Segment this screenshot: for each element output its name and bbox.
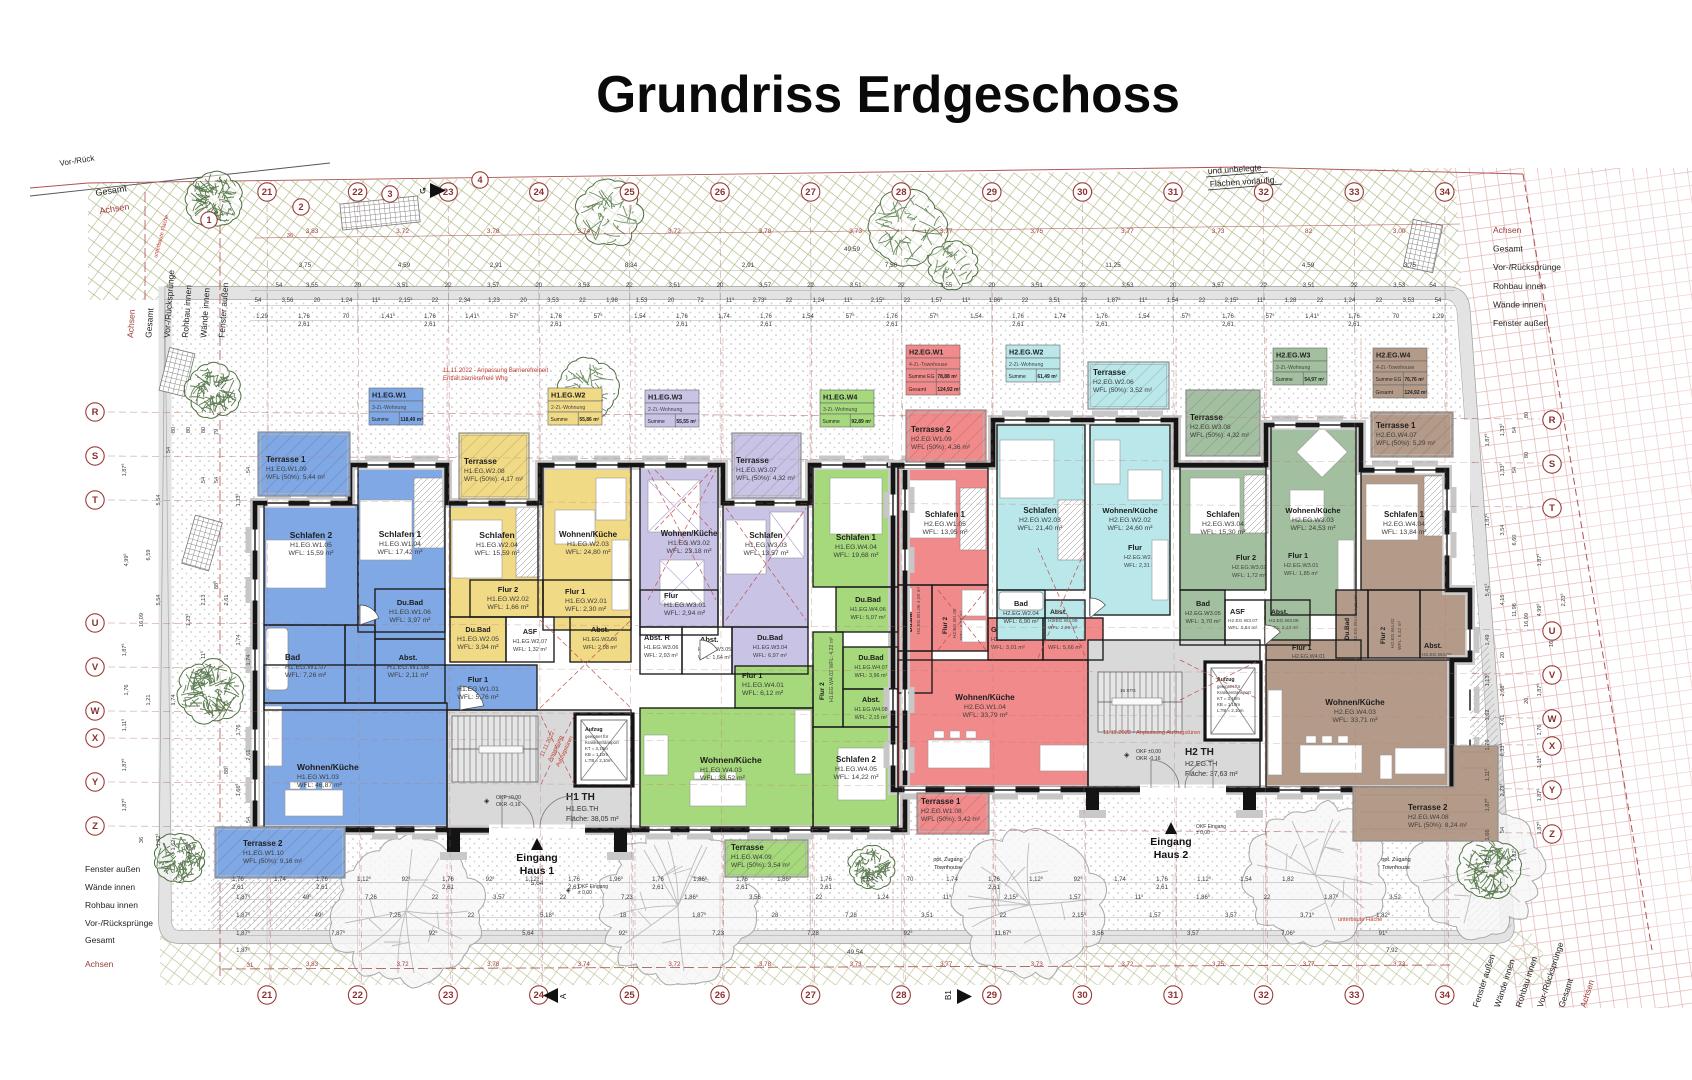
svg-text:± 0,00: ± 0,00: [578, 890, 592, 896]
svg-text:H1.EG.W4.07: H1.EG.W4.07: [854, 665, 887, 671]
svg-text:79: 79: [214, 429, 220, 435]
svg-text:2,61: 2,61: [736, 885, 748, 891]
svg-text:Summe: Summe: [551, 417, 568, 423]
svg-text:H1.EG.W1.07: H1.EG.W1.07: [285, 664, 327, 671]
svg-text:Flur: Flur: [1128, 543, 1142, 552]
svg-text:Krankentransport: Krankentransport: [1217, 690, 1251, 695]
svg-text:32: 32: [1258, 187, 1269, 198]
svg-text:1,54: 1,54: [1138, 314, 1150, 320]
svg-text:22: 22: [1376, 298, 1383, 304]
svg-text:H1.EG.W2.05: H1.EG.W2.05: [457, 636, 499, 643]
svg-text:1,865: 1,865: [1196, 894, 1210, 901]
svg-text:54: 54: [246, 817, 252, 823]
svg-text:1,74: 1,74: [946, 877, 958, 883]
svg-text:70: 70: [1393, 314, 1400, 320]
svg-text:WFL (50%): 4,17 m²: WFL (50%): 4,17 m²: [464, 476, 524, 483]
svg-text:Schlafen 1: Schlafen 1: [379, 529, 422, 539]
svg-text:22: 22: [1079, 282, 1086, 289]
svg-text:Abst.: Abst.: [399, 653, 418, 662]
svg-text:55,55 m²: 55,55 m²: [676, 419, 696, 425]
svg-text:Terrasse 1: Terrasse 1: [266, 455, 306, 464]
svg-text:55,86 m²: 55,86 m²: [579, 417, 599, 423]
svg-text:H2.EG.W3.08: H2.EG.W3.08: [1190, 424, 1231, 431]
svg-text:Z: Z: [92, 821, 98, 832]
svg-text:H1.EG.W2: H1.EG.W2: [551, 391, 585, 400]
svg-text:WFL (50%): 4,36 m²: WFL (50%): 4,36 m²: [911, 444, 971, 451]
svg-text:54: 54: [246, 467, 252, 473]
svg-text:X: X: [1549, 741, 1556, 752]
svg-text:22: 22: [904, 298, 911, 304]
svg-text:ASF: ASF: [523, 627, 538, 636]
svg-text:80: 80: [171, 427, 177, 433]
svg-text:WFL (50%): 3,54 m²: WFL (50%): 3,54 m²: [731, 862, 791, 869]
svg-text:2,13: 2,13: [201, 595, 207, 606]
svg-text:1,54: 1,54: [1167, 298, 1179, 304]
svg-text:WFL: 1,66 m²: WFL: 1,66 m²: [487, 604, 529, 611]
svg-text:Gesamt: Gesamt: [909, 387, 927, 393]
svg-text:B1: B1: [944, 990, 953, 1000]
svg-text:ASF: ASF: [1230, 607, 1245, 616]
svg-text:2,61: 2,61: [886, 322, 898, 328]
svg-text:H2.EG.W2: H2.EG.W2: [1009, 348, 1043, 357]
svg-text:4,61: 4,61: [1500, 715, 1506, 726]
svg-text:20: 20: [1500, 652, 1506, 658]
svg-text:Summe: Summe: [1009, 374, 1026, 380]
svg-text:23: 23: [443, 187, 454, 198]
svg-text:28: 28: [896, 990, 907, 1001]
svg-text:78,88 m²: 78,88 m²: [937, 374, 957, 380]
svg-text:1,53: 1,53: [636, 298, 648, 304]
svg-text:H1.EG.W3: H1.EG.W3: [648, 393, 682, 402]
svg-text:1,76: 1,76: [736, 877, 748, 883]
svg-text:↺: ↺: [419, 186, 427, 196]
svg-text:3,78: 3,78: [759, 961, 772, 968]
svg-text:Wohnen/Küche: Wohnen/Küche: [1285, 506, 1340, 515]
svg-text:22: 22: [1264, 895, 1271, 901]
svg-text:22: 22: [898, 282, 905, 289]
svg-text:H1.EG.W4.06: H1.EG.W4.06: [850, 607, 886, 613]
svg-text:33: 33: [1349, 187, 1360, 198]
svg-text:Flur 2: Flur 2: [942, 616, 949, 634]
svg-text:3,72: 3,72: [396, 228, 409, 235]
svg-text:1,21: 1,21: [146, 695, 152, 706]
svg-text:6,59: 6,59: [146, 550, 152, 561]
svg-text:1,76: 1,76: [652, 877, 664, 883]
svg-text:Terrasse: Terrasse: [1190, 413, 1223, 422]
svg-text:L:TB = 2,10m: L:TB = 2,10m: [585, 758, 612, 763]
svg-text:H1.EG.W1.01: H1.EG.W1.01: [457, 686, 499, 693]
svg-text:Townhouse: Townhouse: [1382, 865, 1410, 871]
svg-text:1,74: 1,74: [1114, 877, 1126, 883]
svg-text:1,875: 1,875: [236, 930, 250, 937]
svg-text:49,59: 49,59: [844, 246, 860, 253]
svg-text:2,61: 2,61: [442, 885, 454, 891]
svg-text:20: 20: [717, 282, 724, 289]
svg-text:H1.EG.W3.03: H1.EG.W3.03: [745, 542, 787, 549]
svg-text:7,28: 7,28: [845, 913, 857, 919]
svg-text:22: 22: [816, 895, 823, 901]
svg-text:H1.EG.W2.04: H1.EG.W2.04: [476, 542, 518, 549]
svg-text:Vor-/Rücksprünge: Vor-/Rücksprünge: [1493, 262, 1561, 272]
svg-text:1,24: 1,24: [877, 895, 889, 901]
svg-text:3,51: 3,51: [1303, 282, 1316, 289]
svg-text:WFL: 6,90 m²: WFL: 6,90 m²: [1003, 619, 1038, 625]
svg-text:1,57: 1,57: [1069, 895, 1081, 901]
svg-text:1,29: 1,29: [1432, 314, 1444, 320]
svg-text:1,76: 1,76: [820, 877, 832, 883]
svg-text:Abst.: Abst.: [1424, 641, 1442, 650]
svg-text:2,61: 2,61: [550, 322, 562, 328]
svg-text:1,74: 1,74: [274, 877, 286, 883]
svg-text:KT = 3,10m: KT = 3,10m: [1217, 696, 1240, 701]
svg-text:7,26: 7,26: [389, 913, 401, 919]
svg-text:H2.EG.W1.04: H2.EG.W1.04: [964, 704, 1006, 711]
svg-text:11.11.2022 - Anpassung Barrier: 11.11.2022 - Anpassung Barrierefreiheit: [443, 368, 549, 374]
svg-text:3,57: 3,57: [1212, 282, 1225, 289]
svg-text:V: V: [92, 662, 99, 673]
svg-text:1,76: 1,76: [316, 877, 328, 883]
svg-text:WFL: 5,66 m²: WFL: 5,66 m²: [1048, 645, 1082, 651]
svg-text:Rohbau innen: Rohbau innen: [85, 900, 138, 910]
svg-text:2,61: 2,61: [1156, 885, 1168, 891]
svg-text:54: 54: [214, 477, 220, 483]
svg-text:2,61: 2,61: [568, 885, 580, 891]
svg-text:Flur 1: Flur 1: [742, 671, 762, 680]
svg-text:H2.EG.W2.04: H2.EG.W2.04: [1003, 611, 1040, 617]
svg-text:22: 22: [786, 298, 793, 304]
svg-text:1,125: 1,125: [1029, 876, 1043, 883]
svg-text:8,34: 8,34: [625, 262, 638, 269]
svg-text:Z: Z: [1549, 829, 1555, 840]
svg-text:H2.EG.W4.02: H2.EG.W4.02: [1390, 618, 1396, 648]
svg-text:H1.EG.W4.09: H1.EG.W4.09: [731, 854, 772, 861]
svg-text:Fenster außen: Fenster außen: [1493, 318, 1549, 328]
svg-text:5,185: 5,185: [540, 912, 554, 919]
svg-text:L:TB = 2,10m: L:TB = 2,10m: [1217, 708, 1244, 713]
svg-text:16,09: 16,09: [1524, 613, 1530, 627]
svg-text:2,61: 2,61: [316, 885, 328, 891]
svg-text:23: 23: [443, 990, 454, 1001]
svg-text:54: 54: [1500, 827, 1506, 833]
svg-text:Flur 1: Flur 1: [468, 675, 488, 684]
svg-text:1,76: 1,76: [1096, 314, 1108, 320]
svg-text:H1.EG.W4: H1.EG.W4: [823, 393, 857, 402]
svg-text:1,24: 1,24: [1344, 298, 1356, 304]
svg-text:11.11.2022 - Anpassung Aufzugs: 11.11.2022 - Anpassung Aufzugstüren: [1103, 730, 1200, 736]
svg-text:Terrasse 1: Terrasse 1: [921, 797, 961, 806]
svg-text:1,74: 1,74: [236, 635, 242, 646]
svg-text:WFL: 15,59 m²: WFL: 15,59 m²: [475, 550, 521, 557]
svg-text:H2.EG.W3.02: H2.EG.W3.02: [1232, 565, 1267, 571]
svg-text:1,76: 1,76: [1348, 314, 1360, 320]
svg-text:24: 24: [534, 990, 545, 1001]
svg-text:3,00: 3,00: [1393, 228, 1406, 235]
svg-text:1,76: 1,76: [568, 877, 580, 883]
svg-text:H1.EG.W3.01: H1.EG.W3.01: [664, 602, 706, 609]
svg-text:29: 29: [987, 990, 998, 1001]
svg-text:34: 34: [1440, 187, 1451, 198]
svg-text:H1.EG.W1.03: H1.EG.W1.03: [297, 774, 339, 781]
svg-text:WFL: 1,85 m²: WFL: 1,85 m²: [1284, 571, 1318, 577]
svg-text:2,61: 2,61: [652, 885, 664, 891]
svg-text:U: U: [1549, 626, 1556, 637]
svg-text:Du.Bad: Du.Bad: [858, 653, 883, 662]
svg-text:2,61: 2,61: [760, 322, 772, 328]
svg-text:20: 20: [520, 298, 527, 304]
svg-text:H2.EG.W3.06: H2.EG.W3.06: [1269, 618, 1299, 624]
svg-text:82: 82: [1305, 228, 1313, 235]
svg-text:7,23: 7,23: [621, 895, 633, 901]
svg-text:25: 25: [624, 187, 635, 198]
svg-text:Gesamt: Gesamt: [1493, 244, 1523, 254]
svg-text:24: 24: [534, 187, 545, 198]
svg-text:Flur 1: Flur 1: [565, 587, 585, 596]
svg-text:H2.EG.W4.07: H2.EG.W4.07: [1376, 432, 1417, 439]
svg-text:4,59: 4,59: [1302, 262, 1315, 269]
svg-text:W: W: [1548, 714, 1557, 725]
svg-text:Fenster außen: Fenster außen: [85, 864, 141, 874]
svg-text:WFL (50%): 8,24 m²: WFL (50%): 8,24 m²: [1408, 822, 1468, 829]
svg-text:1,54: 1,54: [970, 314, 982, 320]
svg-text:11,25: 11,25: [1105, 262, 1121, 269]
svg-text:2,61: 2,61: [1012, 322, 1024, 328]
svg-text:32: 32: [1258, 990, 1269, 1001]
svg-text:Gesamt: Gesamt: [143, 307, 155, 338]
svg-text:22: 22: [432, 895, 439, 901]
svg-text:WFL: 19,68 m²: WFL: 19,68 m²: [834, 552, 880, 559]
svg-text:7,875: 7,875: [331, 930, 345, 937]
svg-text:22: 22: [352, 990, 363, 1001]
svg-text:3,75: 3,75: [1212, 961, 1225, 968]
svg-text:4-Zi.-Townhouse: 4-Zi.-Townhouse: [1376, 365, 1414, 371]
svg-text:H1.EG.W3.04: H1.EG.W3.04: [753, 645, 788, 651]
svg-text:Summe: Summe: [823, 419, 840, 425]
svg-text:2: 2: [298, 202, 303, 212]
svg-text:Flur: Flur: [664, 591, 678, 600]
svg-text:1,62: 1,62: [1485, 710, 1491, 721]
svg-text:Terrasse 2: Terrasse 2: [1408, 803, 1448, 812]
svg-text:1,54: 1,54: [1240, 877, 1252, 883]
svg-text:3,51: 3,51: [668, 282, 681, 289]
svg-text:2,61: 2,61: [820, 885, 832, 891]
svg-text:H1.EG.W2.02: H1.EG.W2.02: [487, 596, 529, 603]
svg-text:H1.EG.W4.01: H1.EG.W4.01: [742, 682, 784, 689]
svg-text:54: 54: [201, 477, 207, 483]
svg-text:WFL: 2,11 m²: WFL: 2,11 m²: [388, 672, 429, 679]
svg-text:22: 22: [1260, 282, 1267, 289]
svg-text:2,34: 2,34: [459, 298, 471, 304]
svg-text:1,76: 1,76: [232, 877, 244, 883]
svg-text:S: S: [92, 451, 98, 462]
svg-text:1,76: 1,76: [886, 314, 898, 320]
svg-text:H2.EG.W2.05: H2.EG.W2.05: [1048, 618, 1078, 624]
svg-text:4: 4: [477, 175, 482, 185]
svg-text:2,61: 2,61: [246, 750, 252, 761]
svg-text:54: 54: [1435, 298, 1442, 304]
svg-text:WFL: 14,22 m²: WFL: 14,22 m²: [834, 774, 880, 781]
svg-text:1,875: 1,875: [236, 947, 250, 954]
svg-text:H1 TH: H1 TH: [566, 792, 595, 803]
svg-text:1,76: 1,76: [988, 877, 1000, 883]
svg-text:2-Zi.-Wohnung: 2-Zi.-Wohnung: [551, 405, 585, 411]
svg-text:1,125: 1,125: [1197, 876, 1211, 883]
svg-text:54: 54: [166, 447, 172, 453]
svg-text:31: 31: [247, 963, 254, 969]
svg-text:1,54: 1,54: [802, 314, 814, 320]
svg-text:H1.EG.W4.08: H1.EG.W4.08: [854, 707, 887, 713]
svg-text:1,76: 1,76: [760, 314, 772, 320]
svg-text:WFL: 1,72 m²: WFL: 1,72 m²: [1232, 573, 1266, 579]
svg-text:H1.EG.W3.06: H1.EG.W3.06: [644, 645, 679, 651]
svg-text:22: 22: [1000, 913, 1007, 919]
svg-text:54: 54: [1512, 467, 1518, 473]
svg-text:H2.EG.W4.01: H2.EG.W4.01: [1292, 654, 1325, 660]
svg-text:22: 22: [1351, 282, 1358, 289]
svg-text:WFL: 5,07 m²: WFL: 5,07 m²: [850, 615, 885, 621]
svg-text:Flur 2: Flur 2: [819, 682, 826, 700]
svg-text:WFL: 3,97 m²: WFL: 3,97 m²: [389, 617, 431, 624]
svg-text:Krankentransport: Krankentransport: [585, 740, 619, 745]
svg-text:H1.EG.W1.08: H1.EG.W1.08: [387, 664, 429, 671]
svg-text:Townhouse: Townhouse: [934, 865, 962, 871]
svg-text:V: V: [1549, 670, 1556, 681]
svg-text:Achsen: Achsen: [125, 309, 137, 338]
svg-text:16 STG: 16 STG: [1120, 688, 1136, 693]
svg-text:opt. Zugang: opt. Zugang: [1381, 857, 1410, 863]
svg-text:3,73: 3,73: [849, 228, 862, 235]
svg-text:1,57: 1,57: [1149, 913, 1161, 919]
svg-text:1,76: 1,76: [124, 685, 130, 696]
svg-text:H2.EG.W3: H2.EG.W3: [1276, 351, 1310, 360]
svg-text:1,415: 1,415: [381, 313, 395, 320]
svg-text:Wohnen/Küche: Wohnen/Küche: [661, 529, 718, 538]
svg-text:7,92: 7,92: [1386, 948, 1398, 954]
svg-text:1,57: 1,57: [931, 298, 943, 304]
svg-text:Schlafen 2: Schlafen 2: [836, 755, 877, 764]
svg-text:3,715: 3,715: [1300, 912, 1314, 919]
svg-text:26: 26: [715, 990, 726, 1001]
svg-text:20: 20: [535, 282, 542, 289]
svg-text:Terrasse: Terrasse: [464, 457, 497, 466]
svg-text:1,23: 1,23: [488, 298, 500, 304]
svg-text:WFL: 5,42 m²: WFL: 5,42 m²: [1397, 621, 1403, 650]
svg-text:20: 20: [1170, 282, 1177, 289]
svg-text:2,91: 2,91: [490, 262, 503, 269]
svg-text:3,52: 3,52: [1389, 895, 1401, 901]
svg-text:Aufzug: Aufzug: [585, 727, 603, 733]
svg-text:H2.EG.W2.02: H2.EG.W2.02: [1109, 517, 1151, 524]
svg-text:WFL (50%): 3,52 m²: WFL (50%): 3,52 m²: [1093, 387, 1153, 394]
svg-text:36: 36: [287, 233, 293, 239]
svg-text:2-Zi.-Wohnung: 2-Zi.-Wohnung: [1276, 365, 1310, 371]
svg-text:4,59: 4,59: [398, 262, 411, 269]
svg-text:WFL: 33,79 m²: WFL: 33,79 m²: [963, 712, 1009, 719]
svg-text:3,72: 3,72: [668, 961, 681, 968]
svg-text:1,76: 1,76: [298, 314, 310, 320]
svg-text:3,73: 3,73: [1393, 961, 1406, 968]
svg-text:30: 30: [1077, 187, 1088, 198]
svg-text:1,125: 1,125: [525, 876, 539, 883]
svg-text:WFL (50%): 4,32 m²: WFL (50%): 4,32 m²: [1190, 432, 1250, 439]
svg-text:3-Zi.-Wohnung: 3-Zi.-Wohnung: [823, 407, 857, 413]
svg-text:54: 54: [1512, 427, 1518, 433]
svg-text:H1.EG.W1.04: H1.EG.W1.04: [379, 541, 421, 548]
svg-text:H2.EG.W2.03: H2.EG.W2.03: [1019, 517, 1061, 524]
svg-text:OKR -0,16: OKR -0,16: [1136, 756, 1161, 762]
svg-text:Wohnen/Küche: Wohnen/Küche: [559, 530, 618, 539]
svg-text:Summe EG: Summe EG: [909, 374, 935, 380]
svg-text:20: 20: [314, 298, 321, 304]
svg-text:1,415: 1,415: [465, 313, 479, 320]
svg-text:Eingang: Eingang: [1150, 836, 1191, 848]
svg-text:WFL: 17,42 m²: WFL: 17,42 m²: [378, 549, 424, 556]
svg-text:22: 22: [432, 298, 439, 304]
svg-text:Abst. R: Abst. R: [644, 633, 671, 642]
svg-text:1,74: 1,74: [246, 655, 252, 666]
svg-text:80: 80: [1524, 452, 1530, 458]
svg-text:36: 36: [139, 837, 145, 843]
svg-text:1,49: 1,49: [1485, 635, 1491, 646]
svg-text:Terrasse: Terrasse: [736, 456, 769, 465]
svg-text:Du.Bad: Du.Bad: [757, 633, 783, 642]
svg-text:◈: ◈: [1124, 752, 1130, 759]
svg-text:1,62: 1,62: [171, 840, 177, 851]
svg-text:H1.EG.W1.09: H1.EG.W1.09: [266, 466, 307, 473]
svg-text:Summe: Summe: [1276, 377, 1293, 383]
svg-text:H2.EG.W4.04: H2.EG.W4.04: [1383, 521, 1425, 528]
svg-text:WFL: 13,95 m²: WFL: 13,95 m²: [923, 529, 969, 536]
svg-text:7,50: 7,50: [885, 262, 898, 269]
svg-text:Flur 1: Flur 1: [1288, 551, 1308, 560]
svg-text:WFL: 2,09 m²: WFL: 2,09 m²: [1048, 625, 1077, 631]
svg-text:H1.EG.W2.08: H1.EG.W2.08: [464, 468, 505, 475]
svg-text:Achsen: Achsen: [85, 959, 114, 969]
svg-text:Terrasse 2: Terrasse 2: [911, 425, 951, 434]
svg-text:21: 21: [262, 990, 273, 1001]
svg-text:2,61: 2,61: [1222, 322, 1234, 328]
svg-text:KB = 1,10m: KB = 1,10m: [1217, 702, 1240, 707]
svg-text:22: 22: [1081, 298, 1088, 304]
svg-text:H1.EG.W4.02 WFL: 4,22 m²: H1.EG.W4.02 WFL: 4,22 m²: [829, 637, 835, 702]
svg-text:54: 54: [276, 282, 283, 289]
svg-text:Grundriss Erdgeschoss: Grundriss Erdgeschoss: [596, 65, 1180, 123]
svg-text:2,61: 2,61: [424, 322, 436, 328]
svg-text:7,23: 7,23: [712, 931, 724, 937]
svg-text:2,61: 2,61: [298, 322, 310, 328]
svg-text:WFL (50%): 5,29 m²: WFL (50%): 5,29 m²: [1376, 440, 1436, 447]
svg-text:5,54: 5,54: [156, 595, 162, 606]
svg-text:Wohnen/Küche: Wohnen/Küche: [297, 762, 359, 772]
svg-text:72: 72: [697, 298, 704, 304]
svg-text:3,77: 3,77: [1121, 228, 1134, 235]
svg-text:2,155: 2,155: [399, 297, 413, 304]
svg-text:2,735: 2,735: [753, 297, 767, 304]
svg-text:1,125: 1,125: [357, 876, 371, 883]
svg-text:1,28: 1,28: [1285, 298, 1297, 304]
svg-text:opt. Zugang: opt. Zugang: [933, 857, 962, 863]
svg-text:H1.EG.W2.07: H1.EG.W2.07: [513, 639, 548, 645]
svg-text:3,53: 3,53: [547, 298, 559, 304]
svg-text:T: T: [1549, 503, 1555, 514]
svg-text:Y: Y: [92, 777, 99, 788]
svg-text:H2.EG.W4.08: H2.EG.W4.08: [1408, 814, 1449, 821]
svg-text:1,74: 1,74: [718, 314, 730, 320]
svg-text:28: 28: [772, 913, 779, 919]
svg-text:3,57: 3,57: [1225, 913, 1237, 919]
svg-text:WFL: 1,32 m²: WFL: 1,32 m²: [513, 647, 547, 653]
svg-text:1,76: 1,76: [1156, 877, 1168, 883]
svg-text:80: 80: [186, 427, 192, 433]
